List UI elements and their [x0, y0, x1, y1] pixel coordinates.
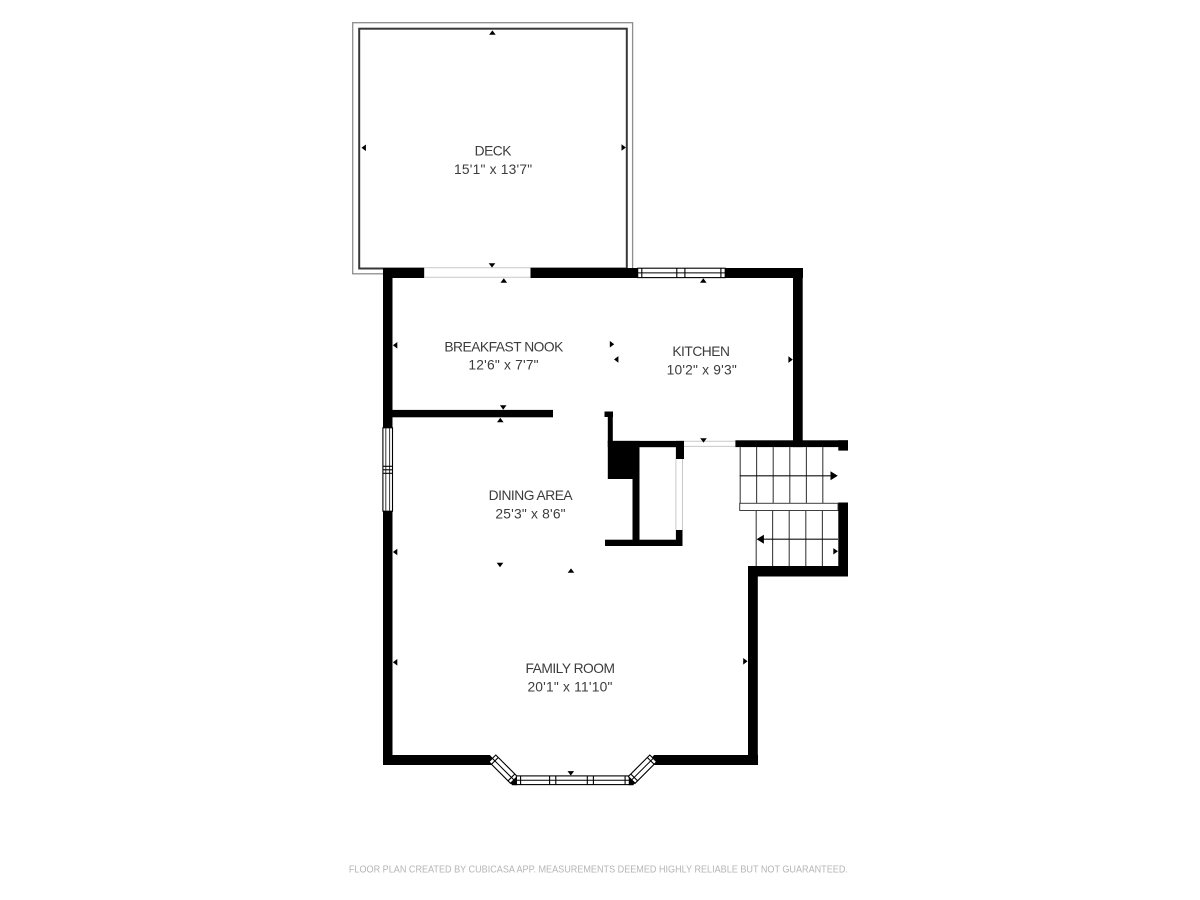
svg-text:BREAKFAST NOOK: BREAKFAST NOOK — [444, 339, 564, 354]
svg-text:DECK: DECK — [475, 144, 513, 159]
svg-text:FLOOR PLAN CREATED BY CUBICASA: FLOOR PLAN CREATED BY CUBICASA APP. MEAS… — [349, 865, 848, 876]
svg-text:20'1" x 11'10": 20'1" x 11'10" — [527, 679, 612, 694]
svg-text:10'2" x 9'3": 10'2" x 9'3" — [667, 362, 737, 377]
svg-text:DINING AREA: DINING AREA — [489, 488, 574, 503]
svg-text:25'3" x 8'6": 25'3" x 8'6" — [495, 507, 565, 522]
svg-text:15'1" x 13'7": 15'1" x 13'7" — [454, 162, 532, 177]
svg-text:KITCHEN: KITCHEN — [672, 344, 729, 359]
svg-text:12'6" x 7'7": 12'6" x 7'7" — [468, 358, 538, 373]
svg-text:FAMILY ROOM: FAMILY ROOM — [525, 661, 614, 676]
